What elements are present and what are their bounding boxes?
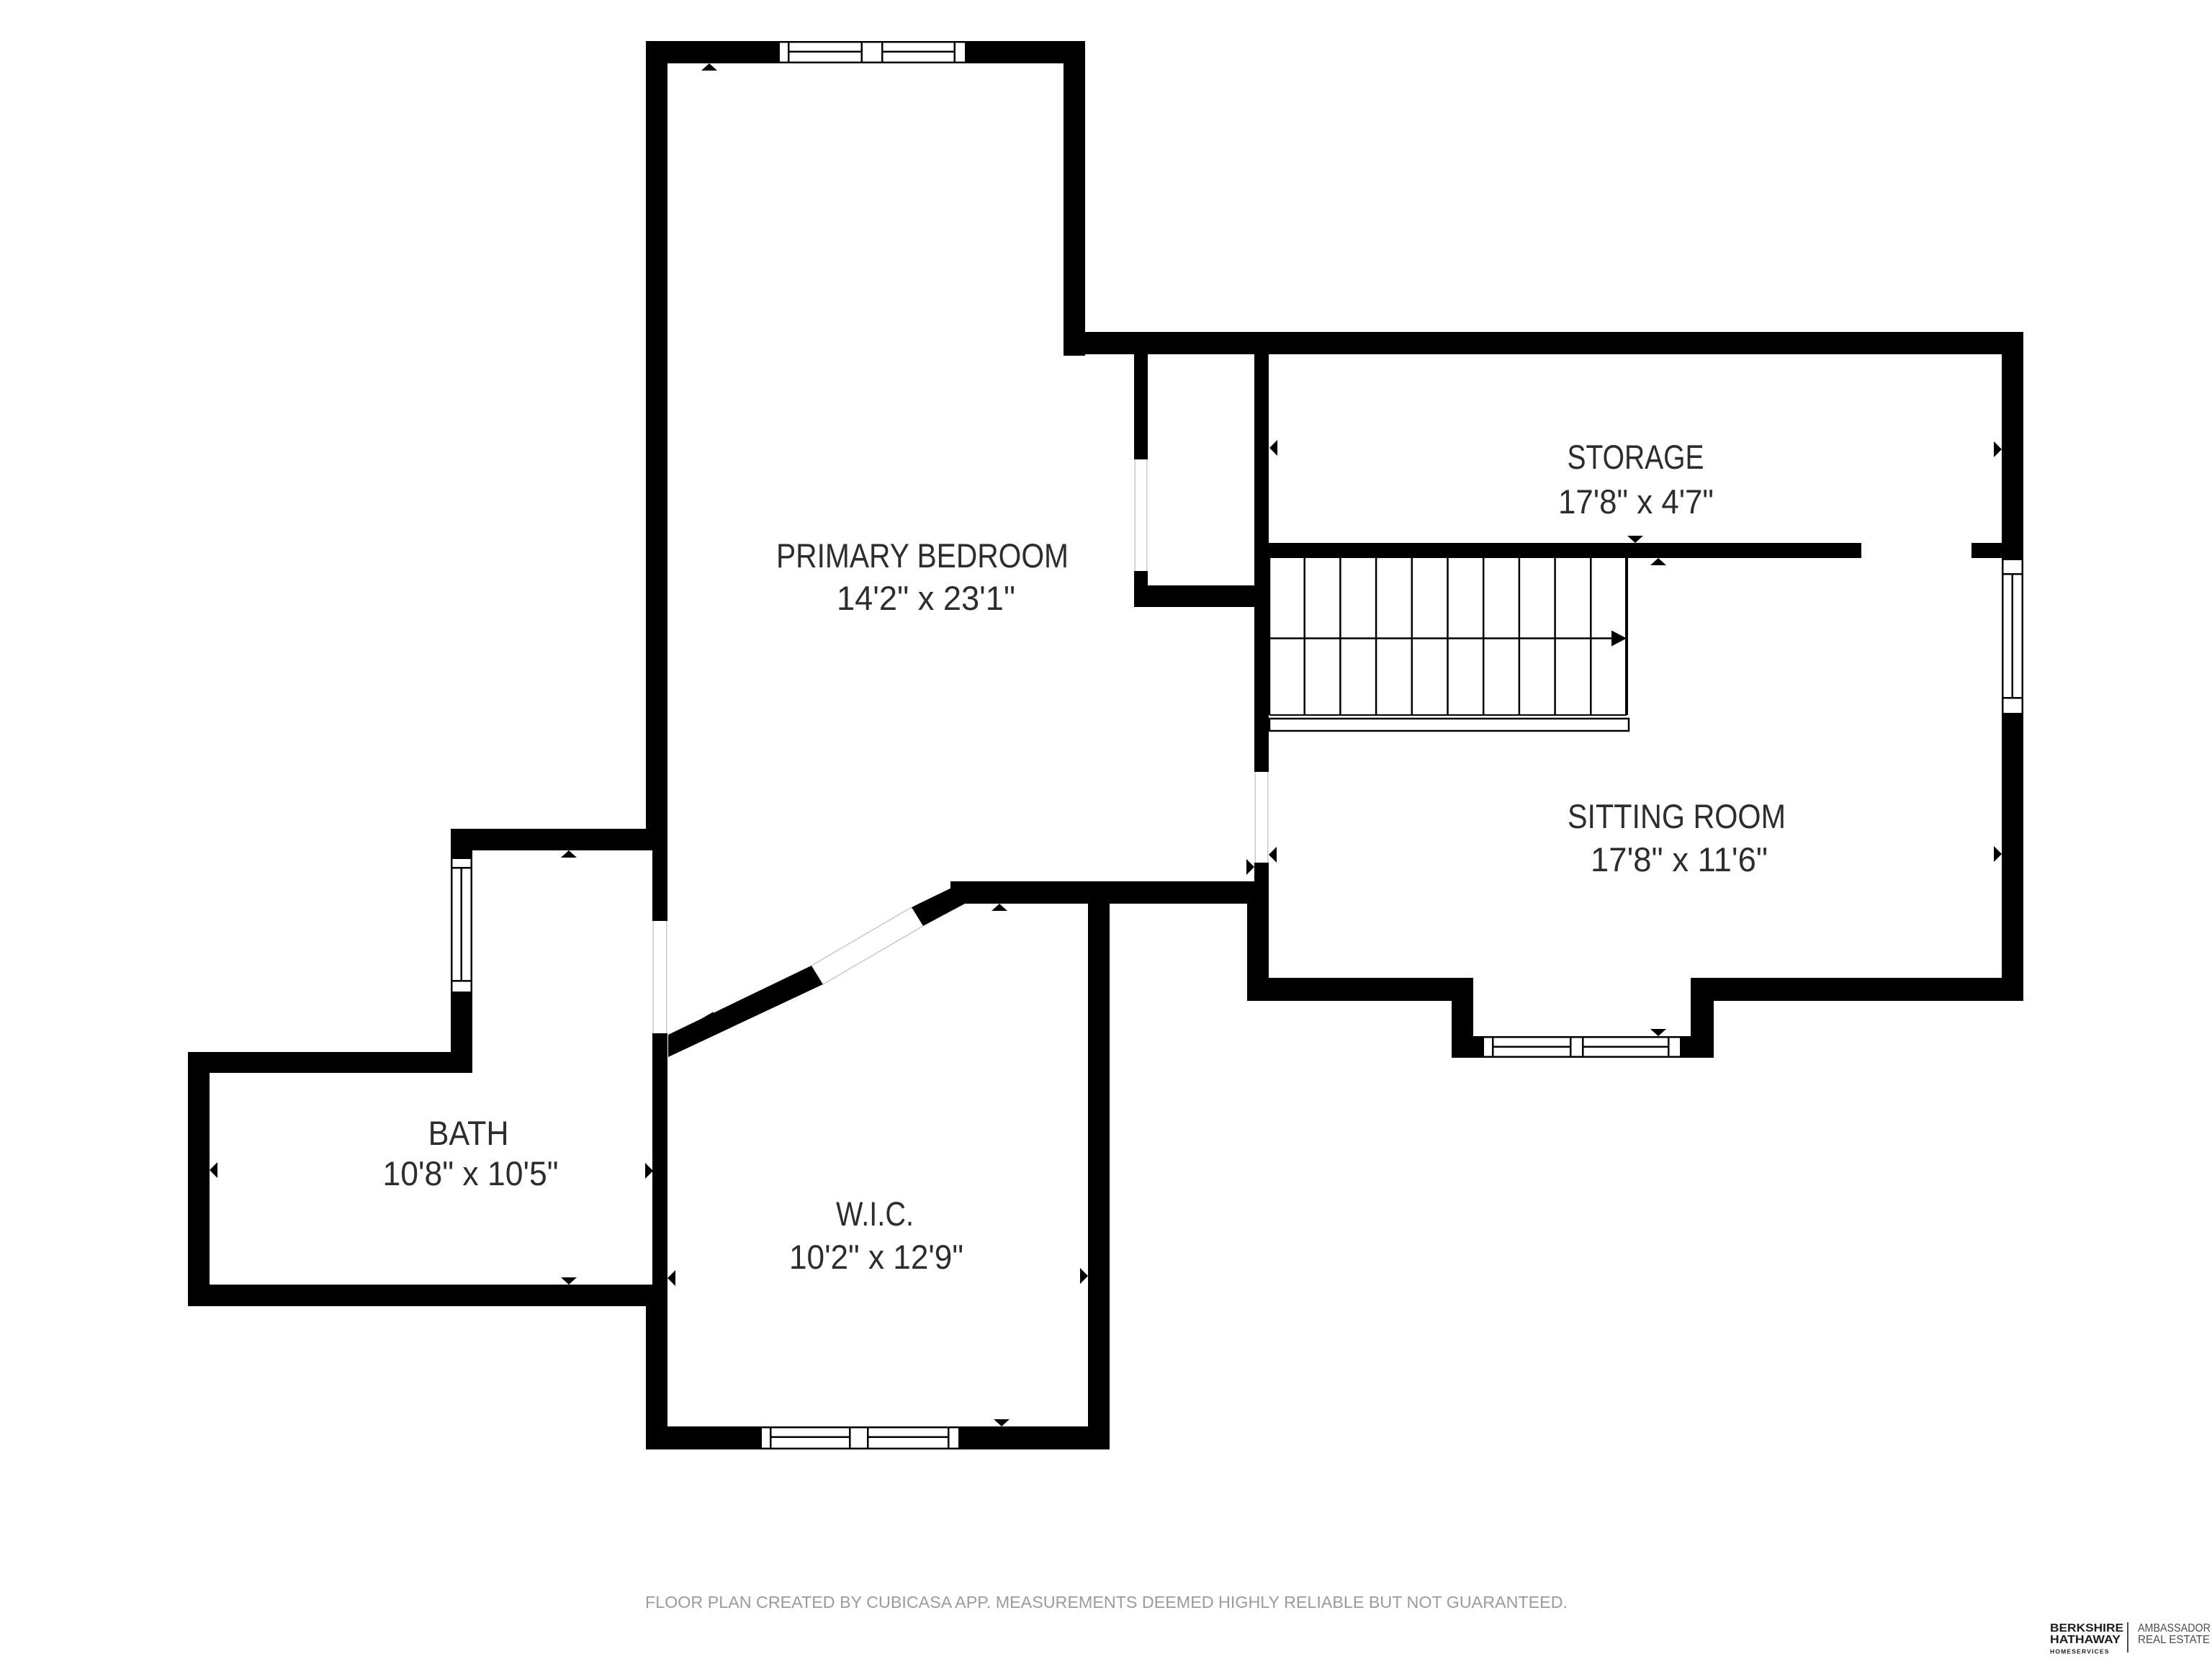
- svg-text:PRIMARY BEDROOM: PRIMARY BEDROOM: [776, 536, 1069, 575]
- svg-text:REAL ESTATE: REAL ESTATE: [2138, 1634, 2210, 1646]
- svg-text:SITTING ROOM: SITTING ROOM: [1568, 797, 1786, 835]
- svg-text:FLOOR PLAN CREATED BY CUBICASA: FLOOR PLAN CREATED BY CUBICASA APP. MEAS…: [645, 1593, 1568, 1611]
- svg-text:10'2" x 12'9": 10'2" x 12'9": [789, 1238, 963, 1276]
- svg-text:W.I.C.: W.I.C.: [836, 1195, 914, 1233]
- svg-text:AMBASSADOR: AMBASSADOR: [2138, 1622, 2211, 1635]
- svg-text:17'8" x 11'6": 17'8" x 11'6": [1591, 840, 1768, 878]
- svg-text:17'8" x 4'7": 17'8" x 4'7": [1558, 482, 1714, 521]
- svg-text:BATH: BATH: [428, 1114, 509, 1152]
- svg-text:HATHAWAY: HATHAWAY: [2050, 1634, 2121, 1646]
- svg-text:STORAGE: STORAGE: [1568, 438, 1704, 476]
- svg-text:14'2" x 23'1": 14'2" x 23'1": [837, 579, 1015, 617]
- svg-text:BERKSHIRE: BERKSHIRE: [2050, 1622, 2123, 1635]
- svg-text:HOMESERVICES: HOMESERVICES: [2050, 1648, 2110, 1655]
- svg-text:10'8" x 10'5": 10'8" x 10'5": [383, 1154, 559, 1192]
